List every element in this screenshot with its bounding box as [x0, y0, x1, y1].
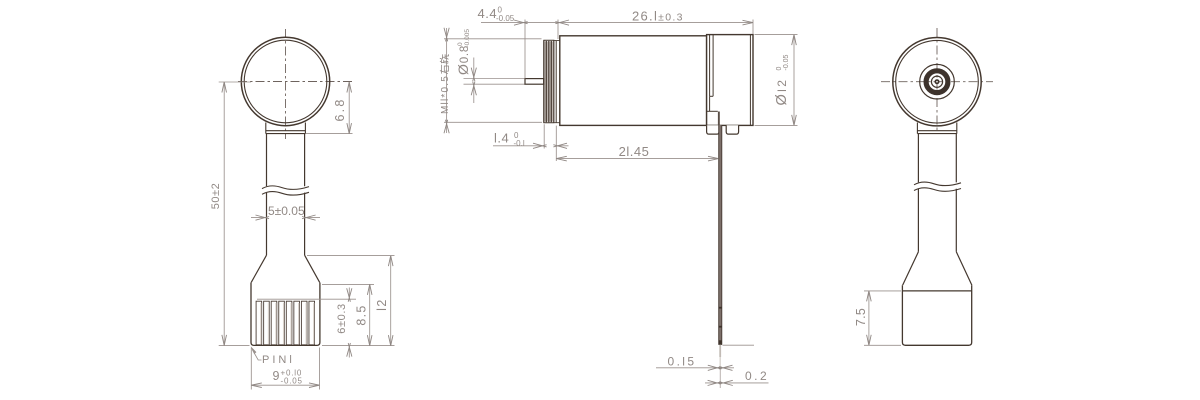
svg-text:9: 9 [273, 369, 280, 383]
svg-text:-0.005: -0.005 [464, 29, 471, 48]
svg-text:Øl2: Øl2 [774, 78, 790, 106]
svg-text:Mll*0.5: Mll*0.5 [440, 75, 451, 114]
svg-text:0.2: 0.2 [745, 369, 769, 383]
svg-text:-0.05: -0.05 [783, 54, 790, 70]
svg-text:l.4: l.4 [494, 130, 509, 145]
svg-text:0: 0 [457, 42, 464, 46]
svg-text:5±0.05: 5±0.05 [268, 204, 305, 218]
svg-text:50±2: 50±2 [210, 183, 222, 209]
svg-text:26.l±0.3: 26.l±0.3 [632, 9, 684, 24]
svg-text:PINl: PINl [262, 354, 295, 366]
svg-text:7.5: 7.5 [854, 308, 868, 326]
svg-text:Ø0.8: Ø0.8 [455, 45, 471, 75]
svg-text:8.5: 8.5 [355, 304, 369, 325]
svg-text:6.8: 6.8 [333, 98, 347, 122]
svg-text:l2: l2 [375, 298, 389, 311]
svg-text:-0.l: -0.l [514, 139, 525, 148]
svg-text:6±0.3: 6±0.3 [336, 303, 348, 333]
svg-text:-0.05: -0.05 [496, 14, 515, 23]
svg-text:2l.45: 2l.45 [619, 144, 650, 159]
svg-text:4.4: 4.4 [478, 6, 498, 21]
svg-text:0: 0 [776, 67, 783, 71]
svg-text:-0.05: -0.05 [281, 377, 303, 386]
svg-text:0.l5: 0.l5 [668, 354, 697, 368]
